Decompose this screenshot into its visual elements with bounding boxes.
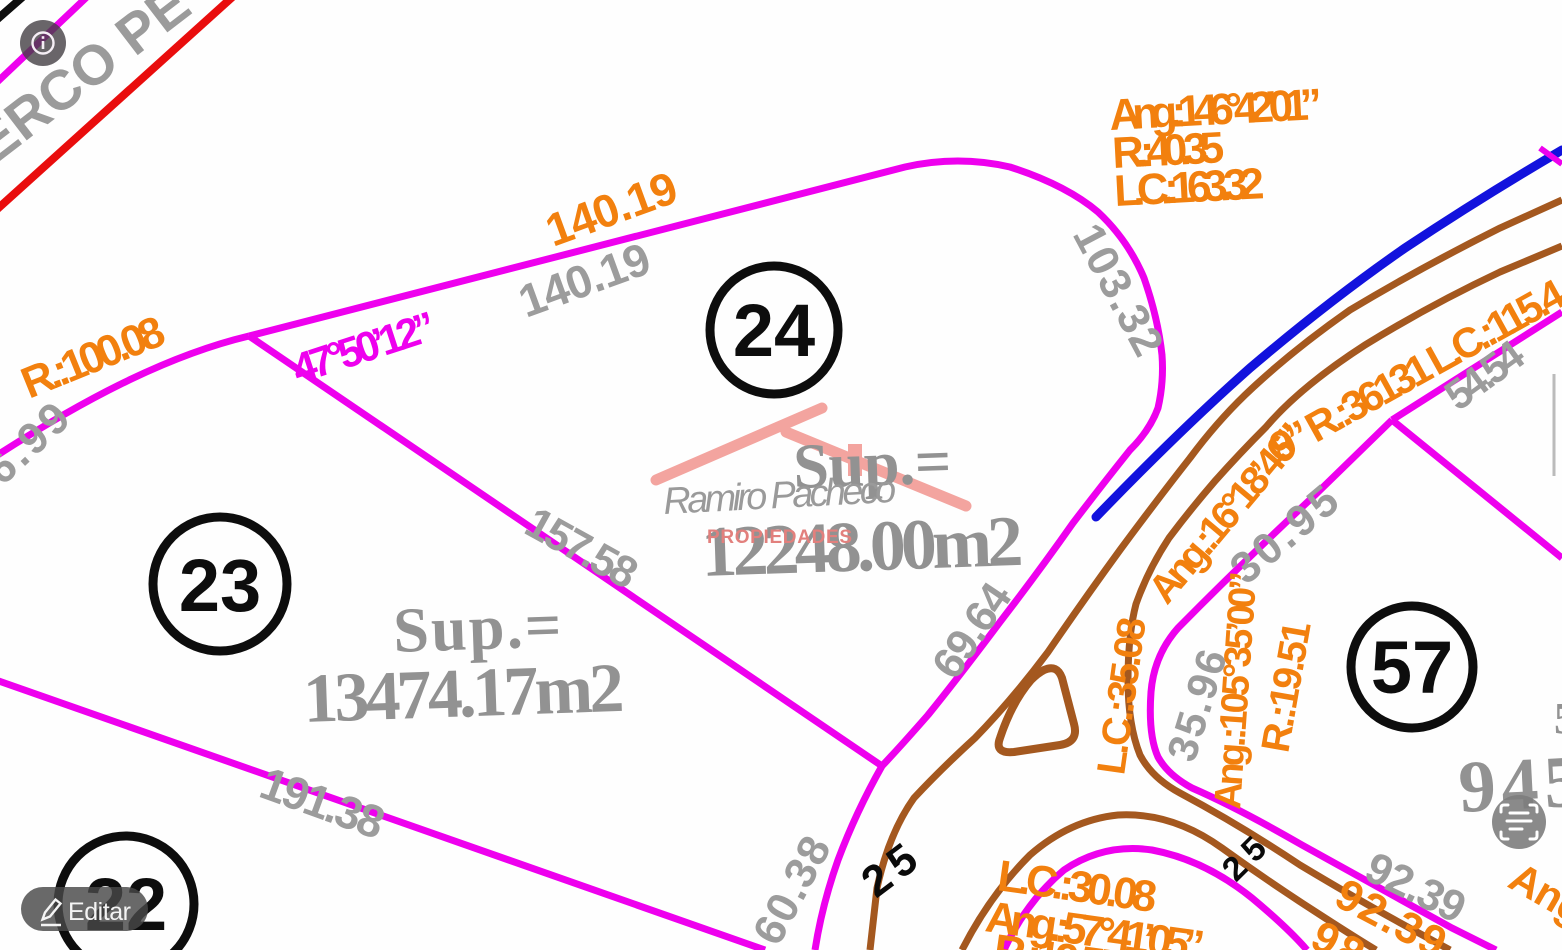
svg-text:23: 23	[179, 544, 261, 627]
svg-text:57: 57	[1371, 626, 1453, 709]
svg-text:5: 5	[1554, 694, 1562, 743]
svg-text:L.C.:163.32: L.C.:163.32	[1113, 159, 1265, 216]
svg-text:PROPIEDADES: PROPIEDADES	[707, 527, 856, 548]
svg-text:13474.17m2: 13474.17m2	[302, 650, 625, 738]
svg-text:24: 24	[733, 289, 815, 372]
svg-text:Editar: Editar	[68, 898, 131, 926]
